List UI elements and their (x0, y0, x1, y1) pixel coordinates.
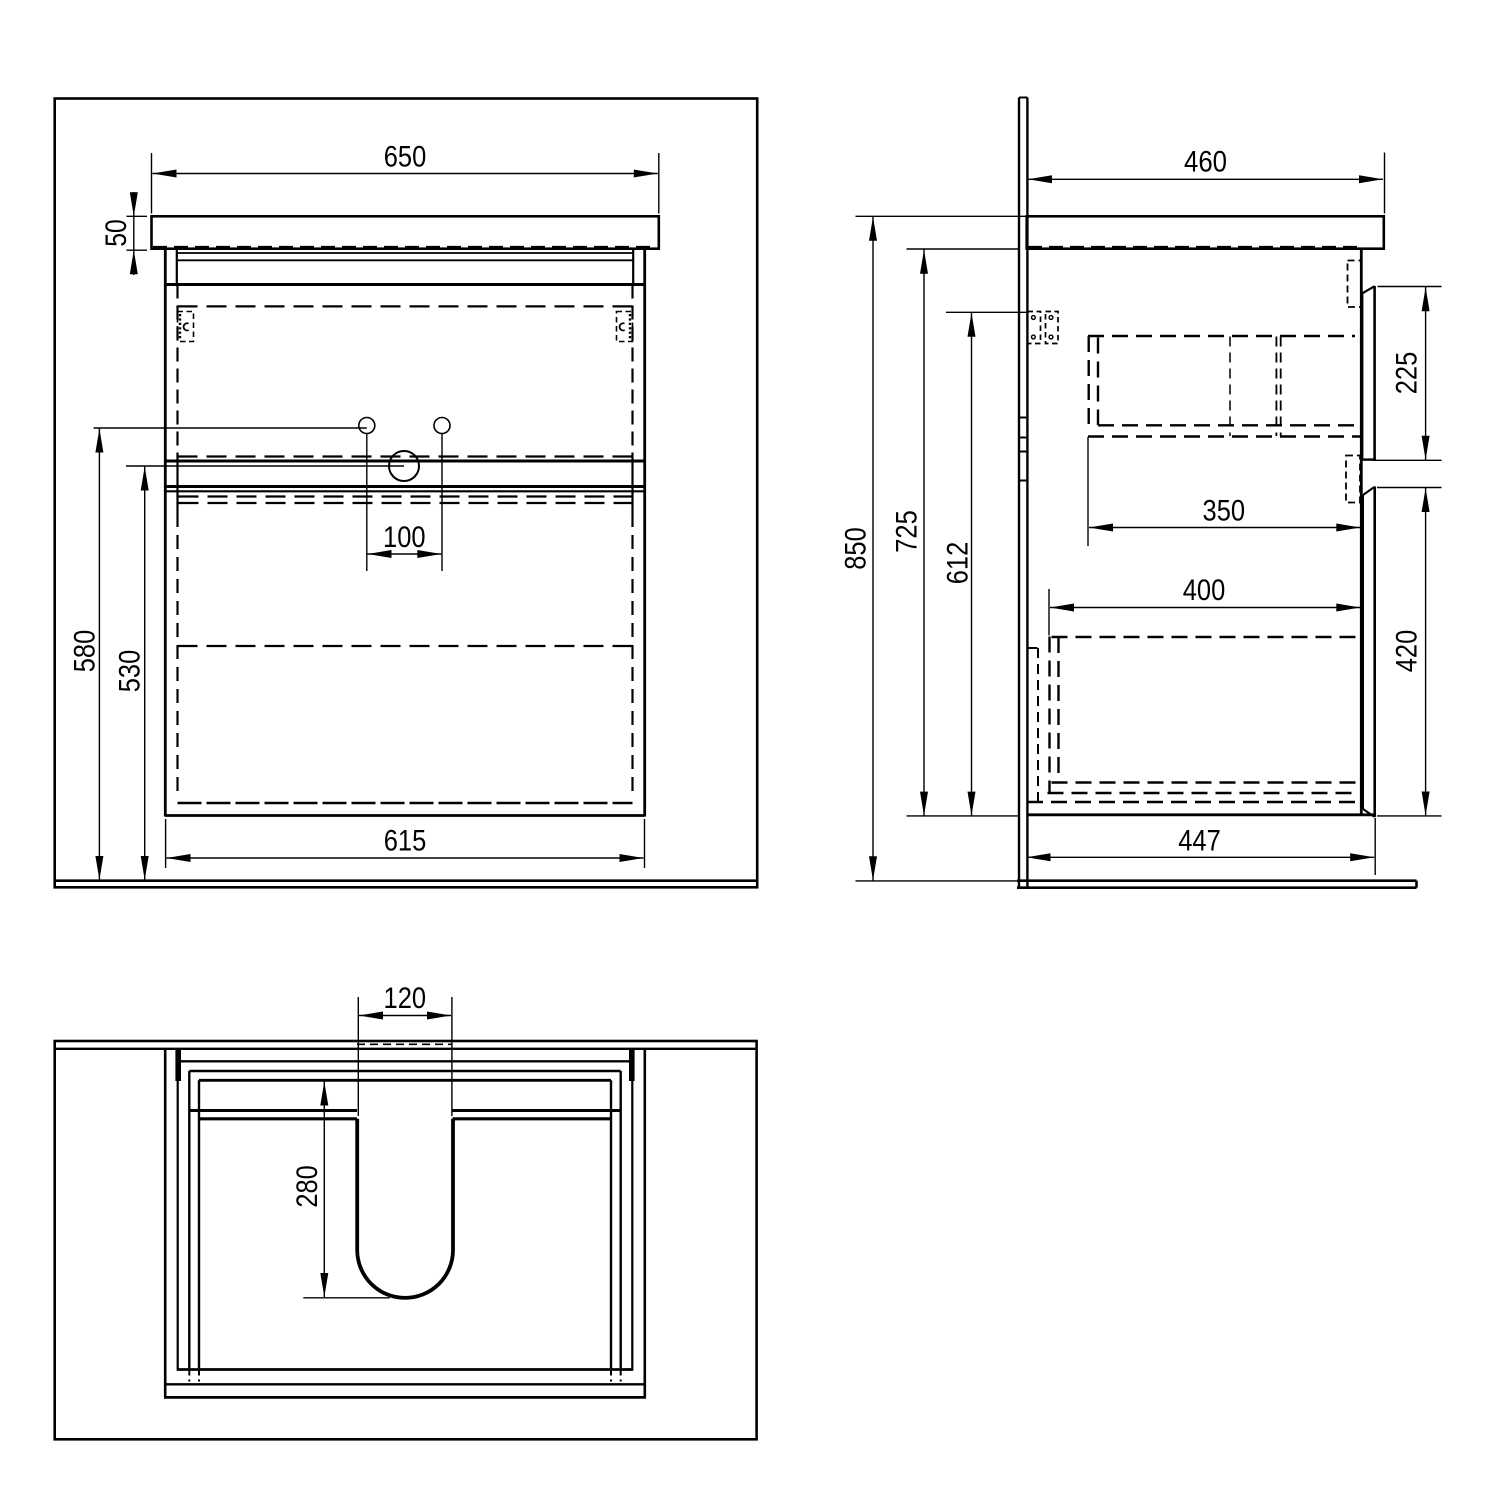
svg-text:615: 615 (384, 824, 427, 857)
svg-text:225: 225 (1391, 352, 1424, 395)
svg-text:50: 50 (100, 219, 133, 247)
svg-text:460: 460 (1184, 145, 1227, 178)
svg-text:725: 725 (891, 510, 924, 553)
svg-text:530: 530 (114, 650, 147, 693)
svg-text:612: 612 (942, 542, 975, 585)
svg-text:850: 850 (840, 527, 873, 570)
svg-text:350: 350 (1203, 494, 1246, 527)
svg-text:280: 280 (291, 1165, 324, 1208)
svg-text:447: 447 (1178, 824, 1221, 857)
svg-text:580: 580 (69, 630, 102, 673)
svg-text:420: 420 (1391, 630, 1424, 673)
svg-text:400: 400 (1183, 574, 1226, 607)
svg-text:650: 650 (384, 141, 427, 174)
svg-text:100: 100 (383, 521, 426, 554)
svg-text:120: 120 (384, 982, 427, 1015)
